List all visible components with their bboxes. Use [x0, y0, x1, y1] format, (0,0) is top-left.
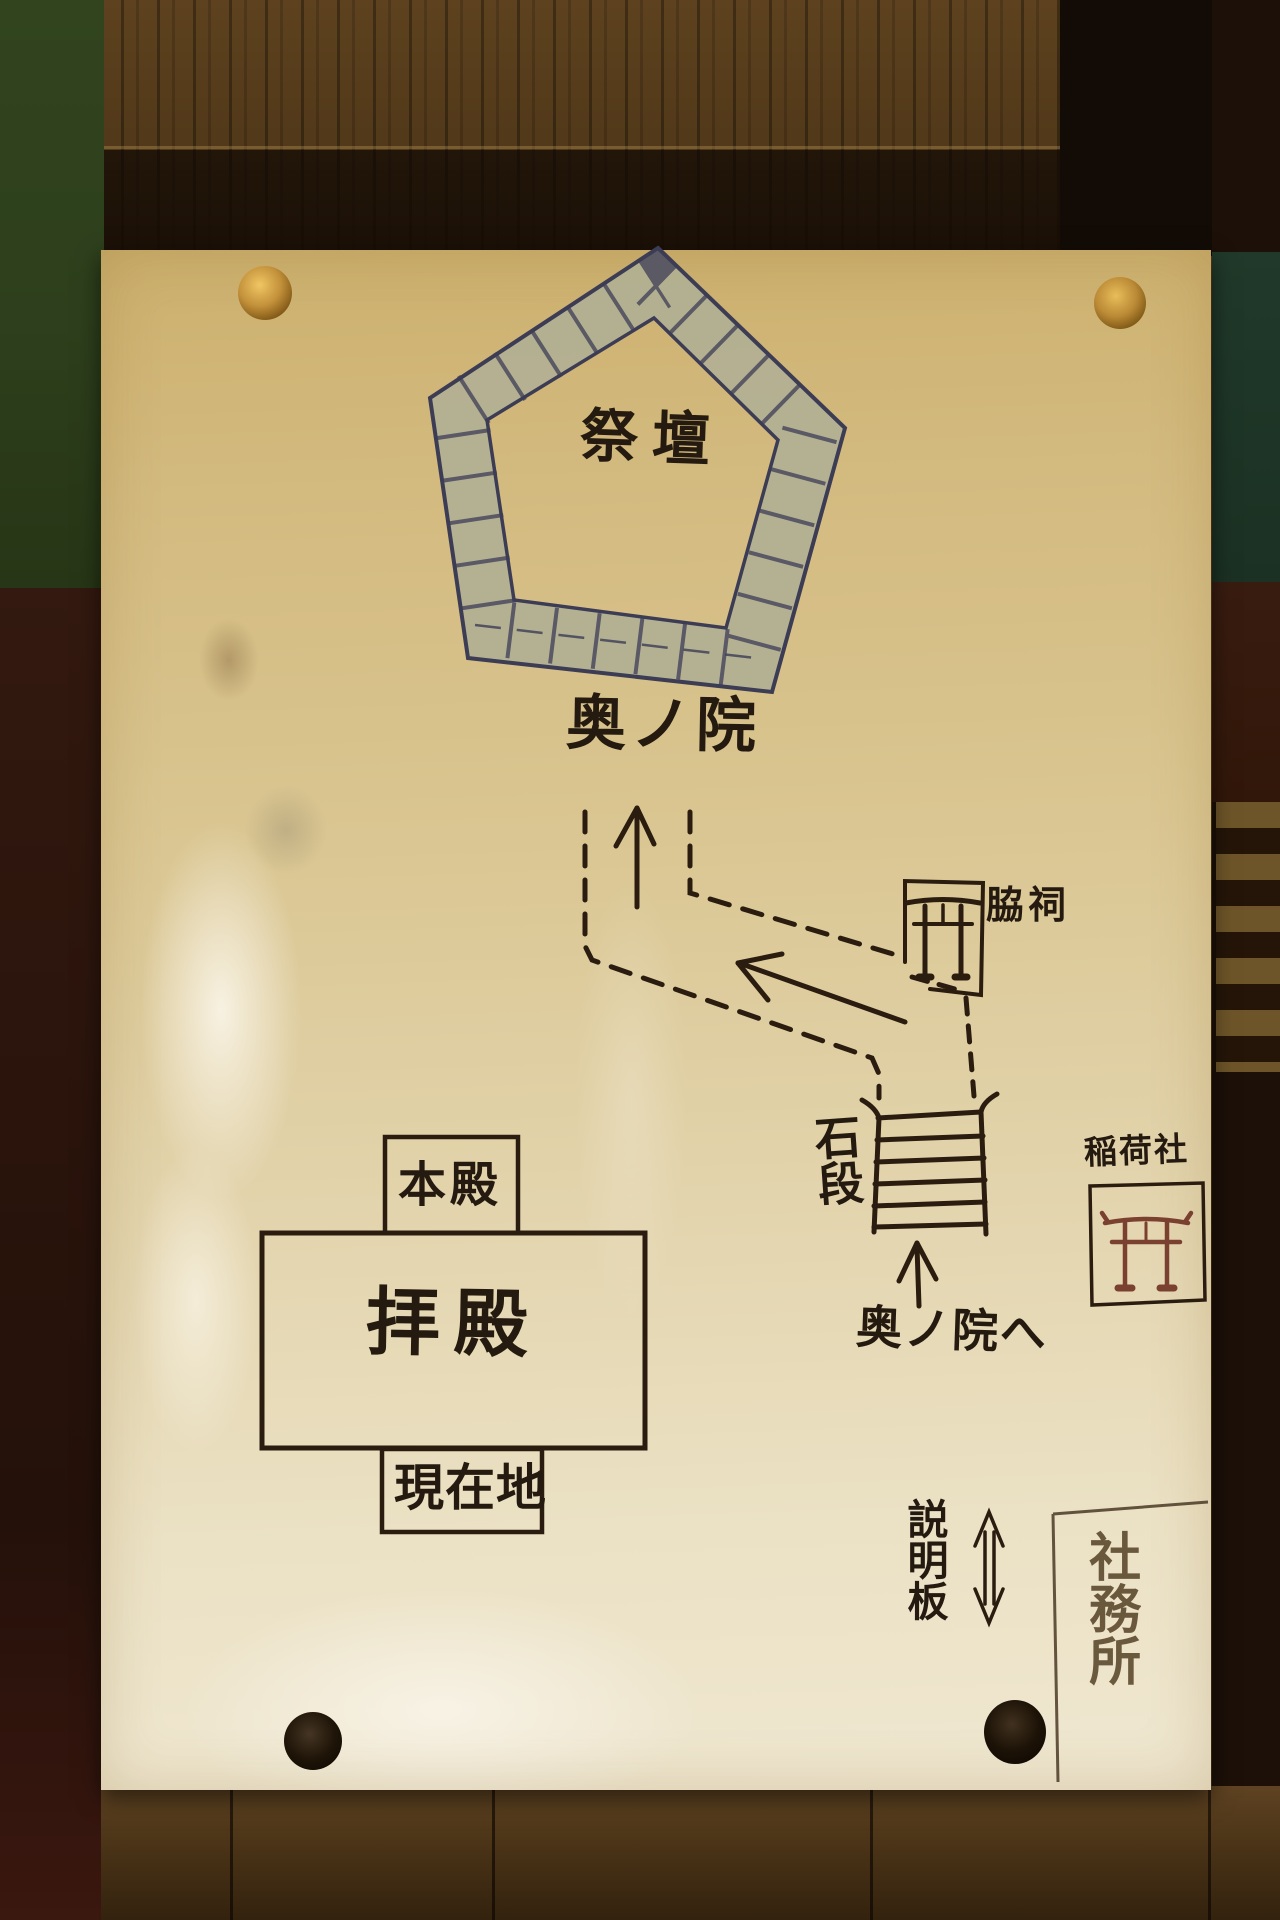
photo-of-shrine-map-sign: 祭壇 奥ノ院 脇祠 石段 奥ノ院へ 稲荷社 本殿 拝殿 現在地 説明板 社務所: [0, 0, 1280, 1920]
plank-seam: [230, 1786, 233, 1920]
stone-steps-label: 石段: [809, 1112, 864, 1207]
pushpin-gold-top-left: [238, 266, 292, 320]
hand-drawn-map-paper: [101, 250, 1211, 1790]
background-right-lattice: [1216, 802, 1280, 1072]
current-location-label: 現在地: [394, 1462, 547, 1515]
signboard-label: 説明板: [902, 1498, 945, 1621]
altar-label: 祭壇: [579, 406, 725, 472]
grommet-bottom-right: [984, 1700, 1046, 1764]
background-bottom-planks: [101, 1786, 1280, 1920]
plank-seam: [870, 1786, 873, 1920]
plank-seam: [492, 1786, 495, 1920]
shrine-office-label: 社務所: [1082, 1530, 1137, 1686]
background-left-structures: [0, 588, 104, 1920]
haiden-label: 拝殿: [365, 1284, 542, 1365]
background-right-building: [1212, 582, 1280, 802]
honden-label: 本殿: [398, 1160, 502, 1210]
background-foliage-left: [0, 0, 104, 588]
grommet-bottom-left: [284, 1712, 342, 1770]
pushpin-gold-top-right: [1094, 277, 1146, 329]
plank-seam: [1208, 1786, 1211, 1920]
post-shadow-band: [85, 150, 1215, 254]
okunoin-label: 奥ノ院: [565, 692, 761, 758]
background-right-foliage: [1212, 252, 1280, 582]
side-shrine-label: 脇祠: [986, 886, 1070, 926]
to-okunoin-label: 奥ノ院へ: [855, 1303, 1049, 1358]
post-groove: [85, 146, 1065, 149]
inari-shrine-label: 稲荷社: [1083, 1132, 1189, 1170]
